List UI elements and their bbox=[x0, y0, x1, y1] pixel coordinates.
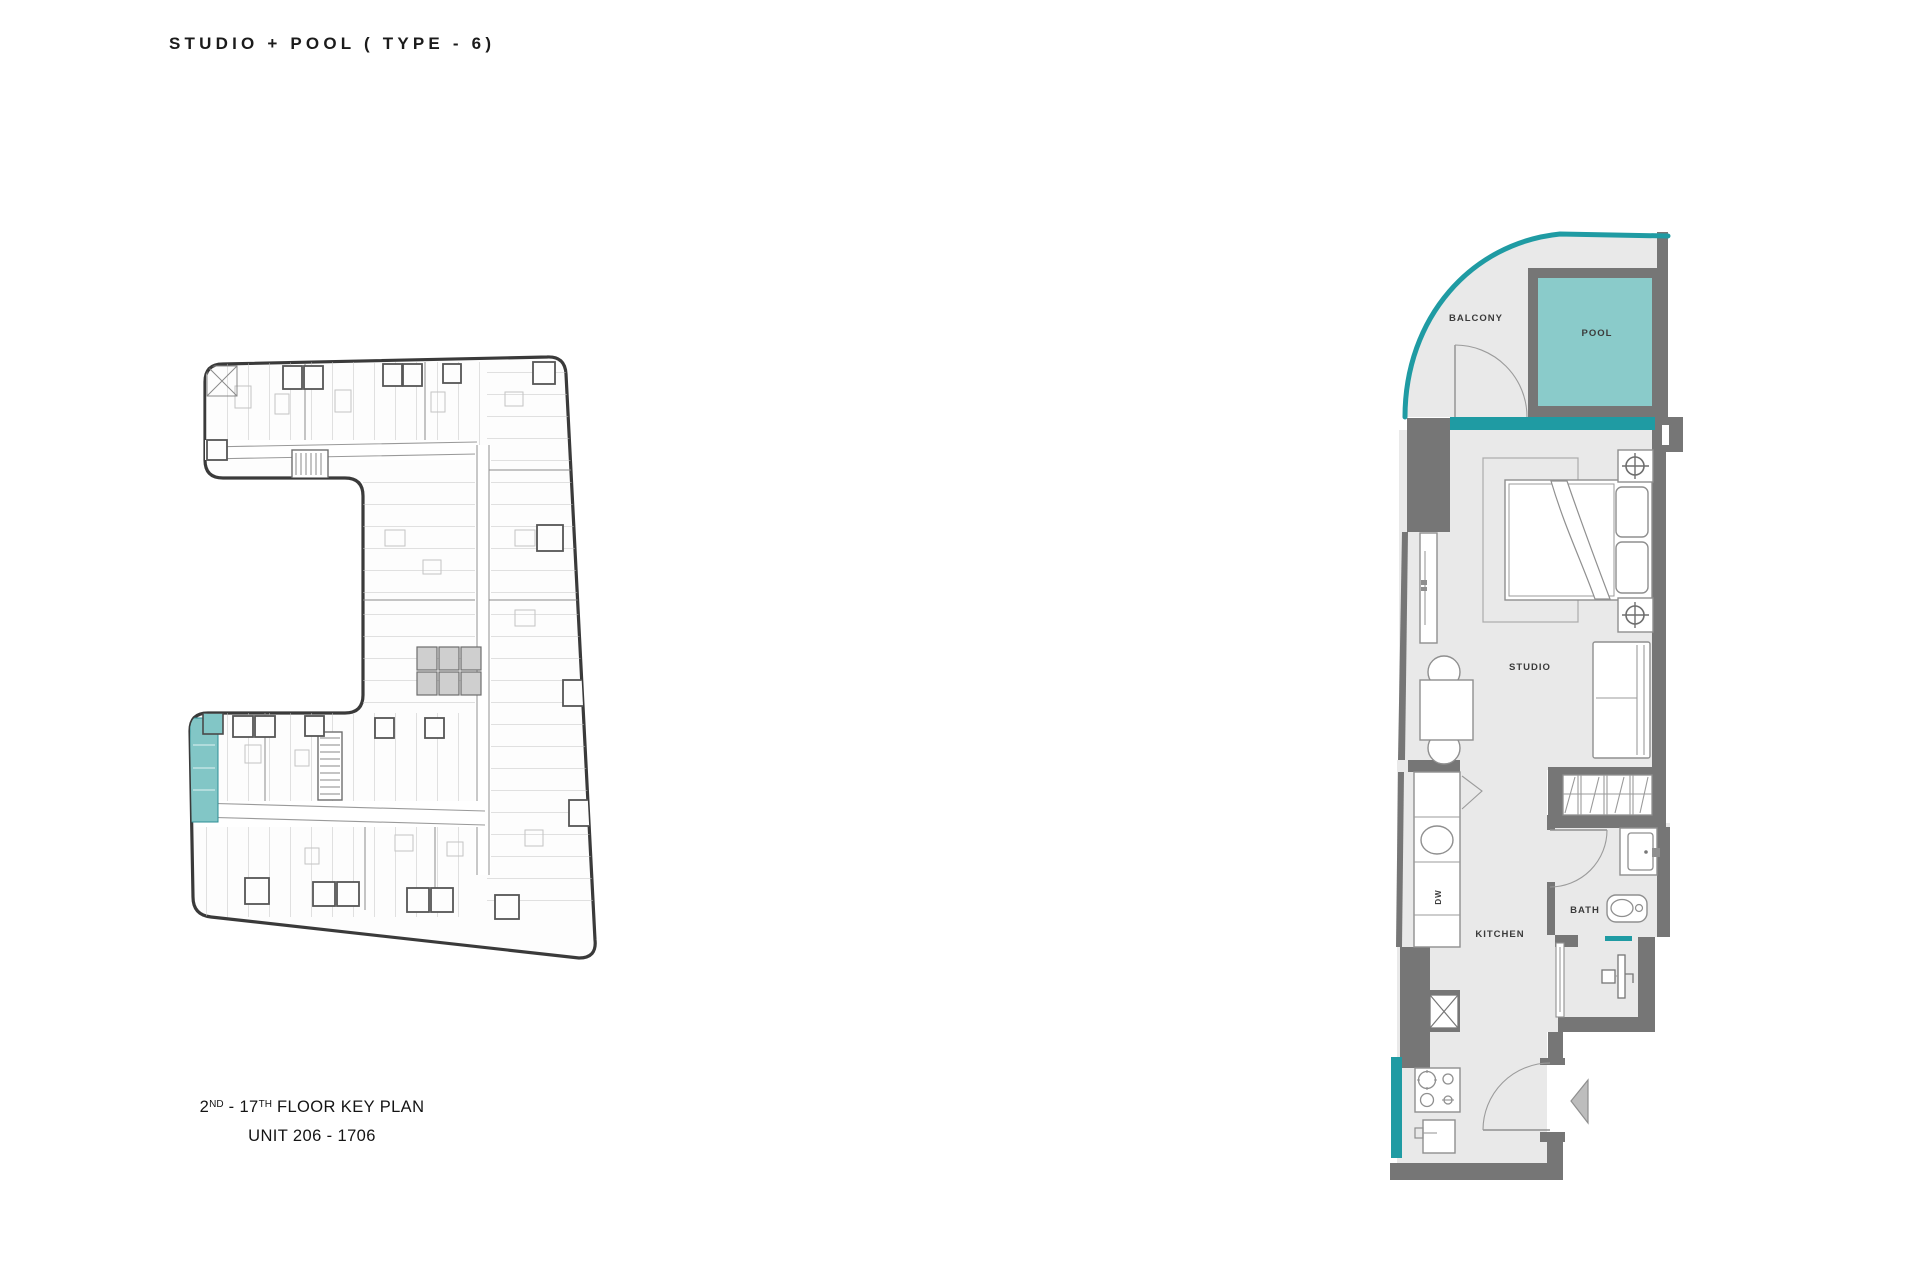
studio-window-wall bbox=[1450, 417, 1655, 430]
key-plan-right-wing-units bbox=[487, 362, 595, 917]
kitchen-glass-strip bbox=[1391, 1057, 1402, 1158]
unit-plan: DW bbox=[1385, 220, 1695, 1190]
shower-bar bbox=[1618, 955, 1625, 998]
studio-label: STUDIO bbox=[1509, 662, 1551, 673]
bath-label: BATH bbox=[1570, 905, 1600, 916]
kitchen-label: KITCHEN bbox=[1475, 929, 1524, 940]
toilet bbox=[1607, 895, 1647, 922]
vanity-tap-icon bbox=[1652, 848, 1660, 857]
key-plan-stair-bottom bbox=[318, 732, 342, 800]
key-plan-highlighted-unit-balcony bbox=[203, 713, 223, 734]
service-shaft bbox=[1430, 995, 1458, 1028]
nightstand-bottom bbox=[1618, 598, 1653, 632]
key-plan-stair-top bbox=[292, 450, 328, 478]
bath-vanity bbox=[1620, 828, 1660, 875]
page: { "title": "STUDIO + POOL ( TYPE - 6)", … bbox=[0, 0, 1920, 1280]
key-plan-caption: 2ND - 17TH FLOOR KEY PLAN UNIT 206 - 170… bbox=[174, 1099, 450, 1144]
key-plan-interior bbox=[190, 362, 595, 919]
key-plan-caption-floors: 2ND - 17TH FLOOR KEY PLAN bbox=[174, 1099, 450, 1116]
entry-arrow-icon bbox=[1571, 1080, 1588, 1123]
tall-cabinet bbox=[1420, 533, 1437, 643]
balcony-label: BALCONY bbox=[1449, 313, 1503, 324]
key-plan-highlighted-unit bbox=[190, 713, 223, 822]
shower-threshold-strip bbox=[1605, 936, 1632, 941]
page-title: STUDIO + POOL ( TYPE - 6) bbox=[169, 34, 495, 54]
pillow bbox=[1616, 542, 1648, 593]
studio-sofa bbox=[1593, 642, 1650, 758]
nightstand-top bbox=[1618, 450, 1653, 482]
key-plan-caption-units: UNIT 206 - 1706 bbox=[174, 1128, 450, 1145]
key-plan bbox=[185, 350, 605, 962]
pool-label: POOL bbox=[1582, 328, 1613, 339]
pool-water bbox=[1538, 278, 1652, 406]
pillow bbox=[1616, 487, 1648, 537]
dishwasher-label: DW bbox=[1434, 889, 1443, 904]
stove bbox=[1415, 1068, 1460, 1112]
dining-table bbox=[1420, 680, 1473, 740]
wardrobe bbox=[1563, 775, 1652, 815]
shower-handle bbox=[1602, 970, 1615, 983]
